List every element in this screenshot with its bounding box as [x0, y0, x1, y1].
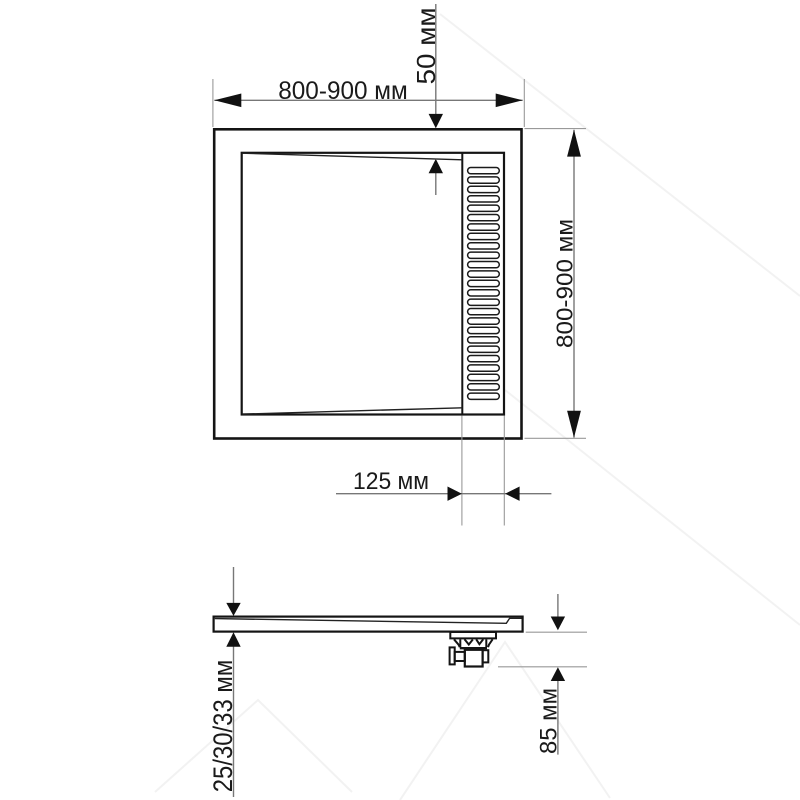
svg-text:50 мм: 50 мм — [411, 8, 441, 85]
svg-text:85 мм: 85 мм — [536, 688, 563, 754]
svg-text:25/30/33 мм: 25/30/33 мм — [208, 660, 238, 793]
svg-text:800-900 мм: 800-900 мм — [552, 219, 578, 348]
svg-text:125 мм: 125 мм — [353, 468, 429, 495]
svg-text:800-900 мм: 800-900 мм — [278, 77, 408, 105]
